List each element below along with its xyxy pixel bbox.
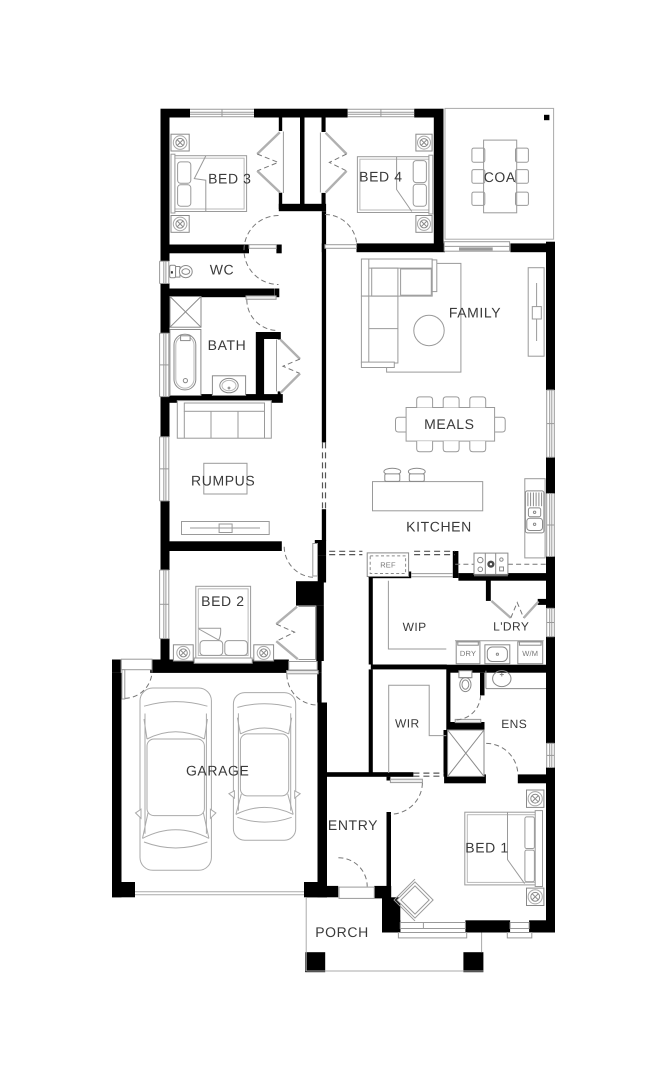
svg-text:KITCHEN: KITCHEN <box>406 519 472 535</box>
svg-text:BED 1: BED 1 <box>465 840 508 856</box>
svg-text:PORCH: PORCH <box>315 924 369 940</box>
svg-text:MEALS: MEALS <box>424 416 474 432</box>
svg-text:WIR: WIR <box>395 717 420 731</box>
svg-text:FAMILY: FAMILY <box>449 305 501 321</box>
svg-text:W/M: W/M <box>522 649 538 658</box>
svg-text:COA: COA <box>484 169 516 185</box>
svg-text:WIP: WIP <box>403 620 427 634</box>
svg-text:GARAGE: GARAGE <box>186 763 250 779</box>
svg-text:DRY: DRY <box>460 649 476 658</box>
svg-text:BED 4: BED 4 <box>359 169 402 185</box>
svg-text:RUMPUS: RUMPUS <box>191 473 255 489</box>
svg-text:BED 3: BED 3 <box>208 170 251 186</box>
svg-text:ENS: ENS <box>501 717 527 731</box>
svg-text:L'DRY: L'DRY <box>493 620 529 634</box>
svg-text:REF: REF <box>380 561 396 570</box>
svg-text:BATH: BATH <box>208 337 247 353</box>
svg-text:WC: WC <box>210 261 235 277</box>
svg-text:BED 2: BED 2 <box>201 593 244 609</box>
svg-text:ENTRY: ENTRY <box>328 817 378 833</box>
